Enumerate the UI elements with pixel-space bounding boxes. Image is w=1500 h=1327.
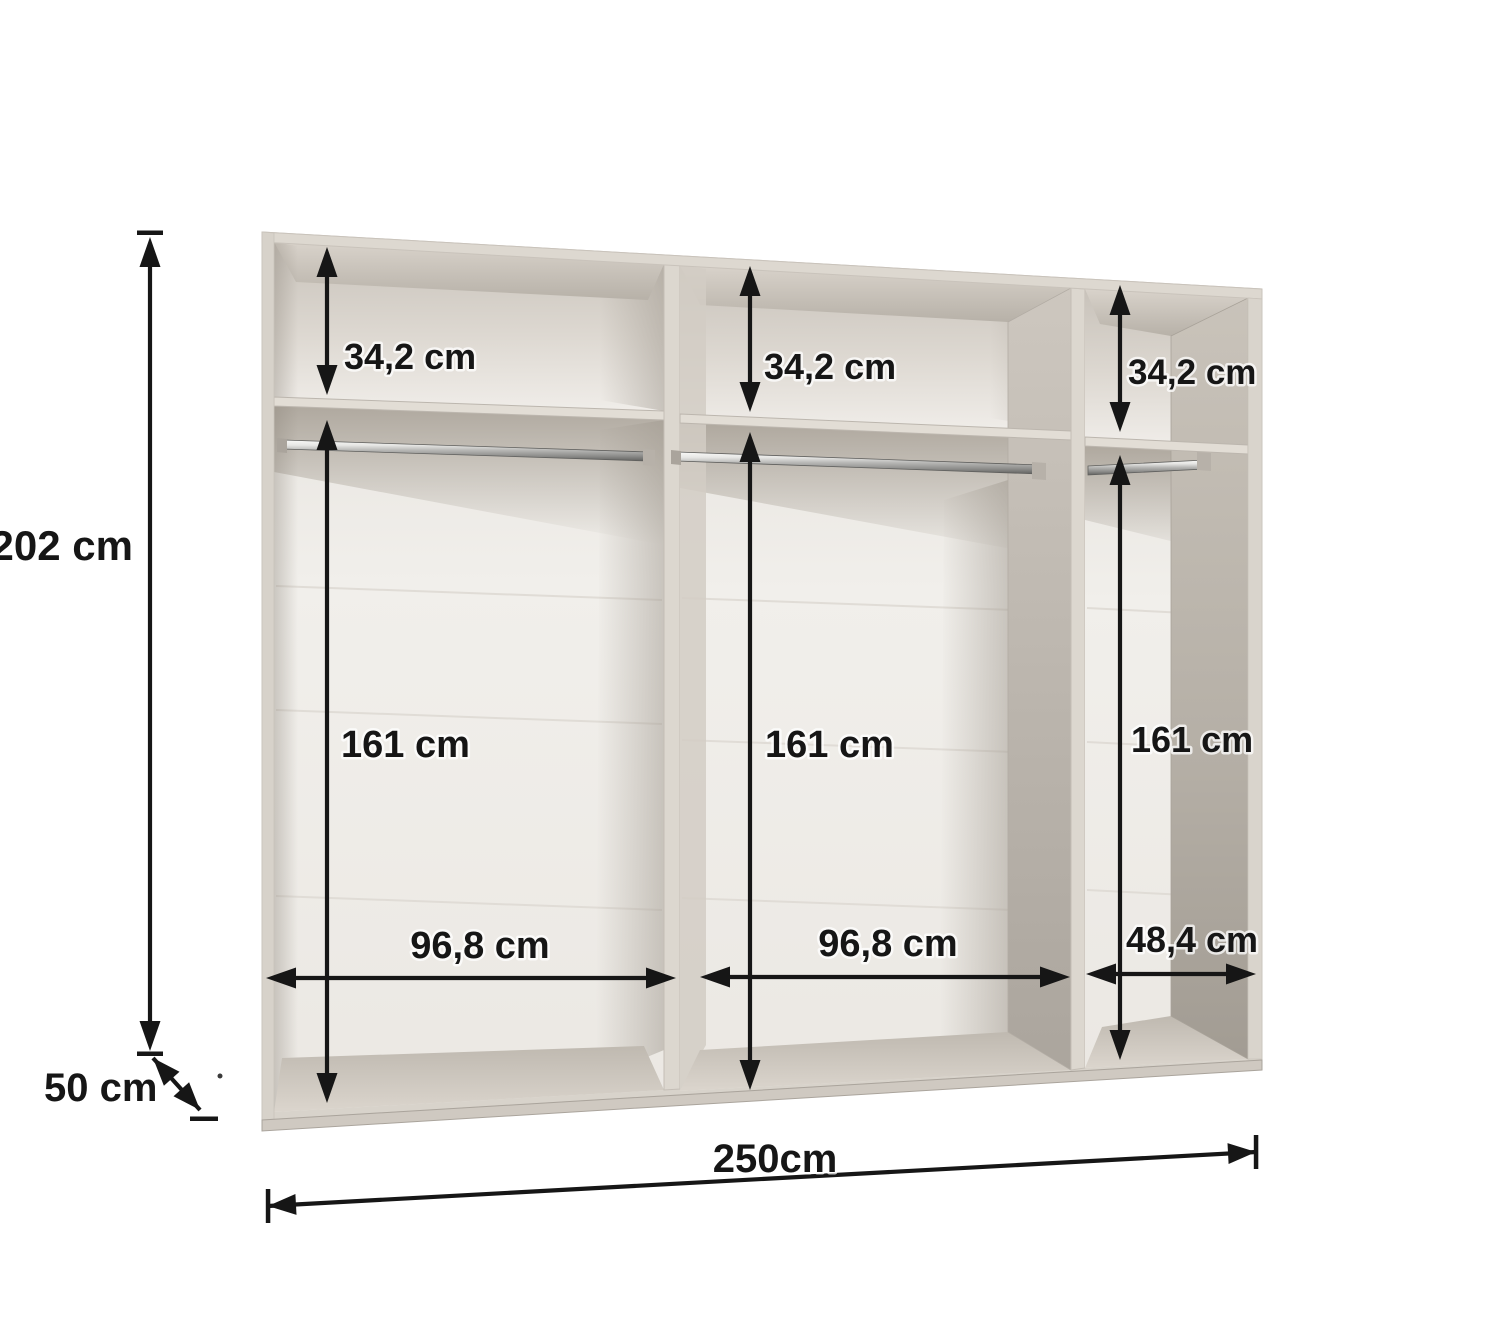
- compartment-right-width-label: 48,4 cm: [1126, 919, 1258, 960]
- divider-corner-shadow: [940, 480, 1008, 1060]
- rail-bracket-left: [671, 450, 681, 465]
- compartment-middle-hanging-label: 161 cm: [765, 724, 894, 766]
- width-dimension: 250cm: [266, 1135, 1259, 1223]
- left-panel-front: [262, 232, 274, 1120]
- compartment-right-shelf-label: 34,2 cm: [1128, 353, 1256, 392]
- compartment-middle-shelf-label: 34,2 cm: [764, 346, 896, 387]
- wardrobe-dimension-diagram: 202 cm 50 cm 250cm 34,2 cm: [0, 0, 1500, 1327]
- divider-2-side-face: [1008, 288, 1071, 1070]
- compartment-right-hanging-label: 161 cm: [1131, 719, 1253, 760]
- height-tick-bottom: [137, 1052, 163, 1057]
- arrow-up-icon: [140, 237, 161, 267]
- height-dimension-label: 202 cm: [0, 522, 133, 569]
- height-dimension: 202 cm: [0, 231, 163, 1057]
- height-tick-top: [137, 231, 163, 236]
- depth-dimension: 50 cm: [44, 1058, 223, 1121]
- arrow-right-icon: [1228, 1143, 1257, 1164]
- diagram-canvas: 202 cm 50 cm 250cm 34,2 cm: [0, 0, 1500, 1327]
- compartment-middle-width-label: 96,8 cm: [818, 923, 957, 965]
- divider-1: [664, 264, 680, 1090]
- compartment-left-shelf-label: 34,2 cm: [344, 336, 476, 377]
- rail-bracket-right: [1032, 462, 1046, 480]
- depth-dimension-label: 50 cm: [44, 1066, 157, 1110]
- depth-tick: [190, 1117, 218, 1122]
- compartment-middle: [671, 265, 1071, 1091]
- arrow-left-icon: [268, 1194, 297, 1215]
- compartment-left-hanging-label: 161 cm: [341, 724, 470, 766]
- divider-2: [1071, 288, 1085, 1070]
- rail-bracket-right: [1197, 452, 1211, 471]
- compartment-left-width-label: 96,8 cm: [410, 925, 549, 967]
- stray-dot: [218, 1074, 223, 1079]
- rail-bracket-right: [643, 449, 655, 466]
- rail-bracket-left: [277, 438, 287, 453]
- arrow-down-icon: [140, 1021, 161, 1051]
- width-dimension-label: 250cm: [713, 1137, 838, 1181]
- left-corner-band: [680, 265, 706, 1091]
